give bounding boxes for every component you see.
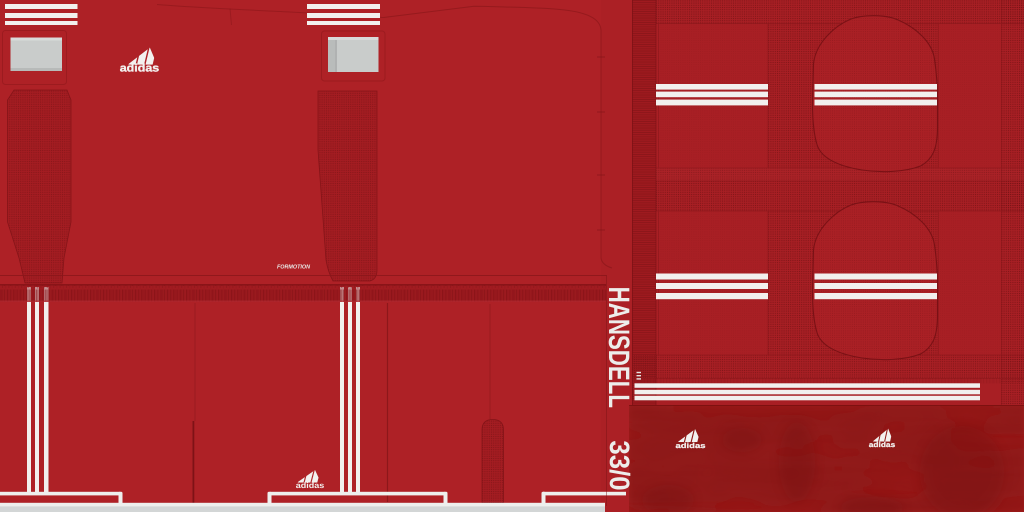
svg-text:33/0: 33/0 xyxy=(604,440,635,490)
svg-text:adidas: adidas xyxy=(869,441,896,449)
svg-text:adidas: adidas xyxy=(676,441,706,450)
svg-text:FORMOTION: FORMOTION xyxy=(277,264,311,271)
svg-text:HANSDELL: HANSDELL xyxy=(602,287,635,408)
svg-text:adidas: adidas xyxy=(296,481,325,490)
svg-text:adidas: adidas xyxy=(120,63,160,75)
